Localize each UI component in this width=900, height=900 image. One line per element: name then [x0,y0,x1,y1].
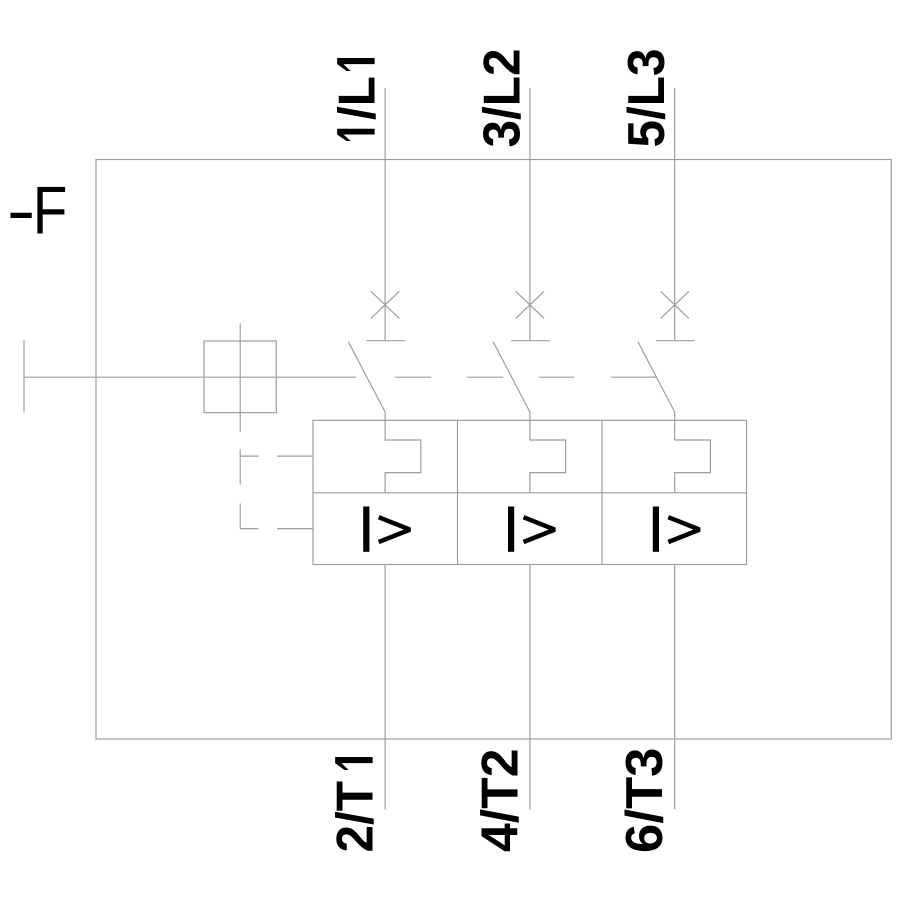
svg-text:2/T: 2/T [327,781,385,853]
svg-text:/L: /L [329,76,387,120]
svg-text:-: - [7,173,36,248]
svg-text:3/L2: 3/L2 [473,49,531,148]
svg-text:F: F [33,173,68,248]
svg-text:6/T3: 6/T3 [616,748,674,854]
svg-text:5/L3: 5/L3 [618,49,676,148]
svg-text:4/T2: 4/T2 [471,749,529,853]
